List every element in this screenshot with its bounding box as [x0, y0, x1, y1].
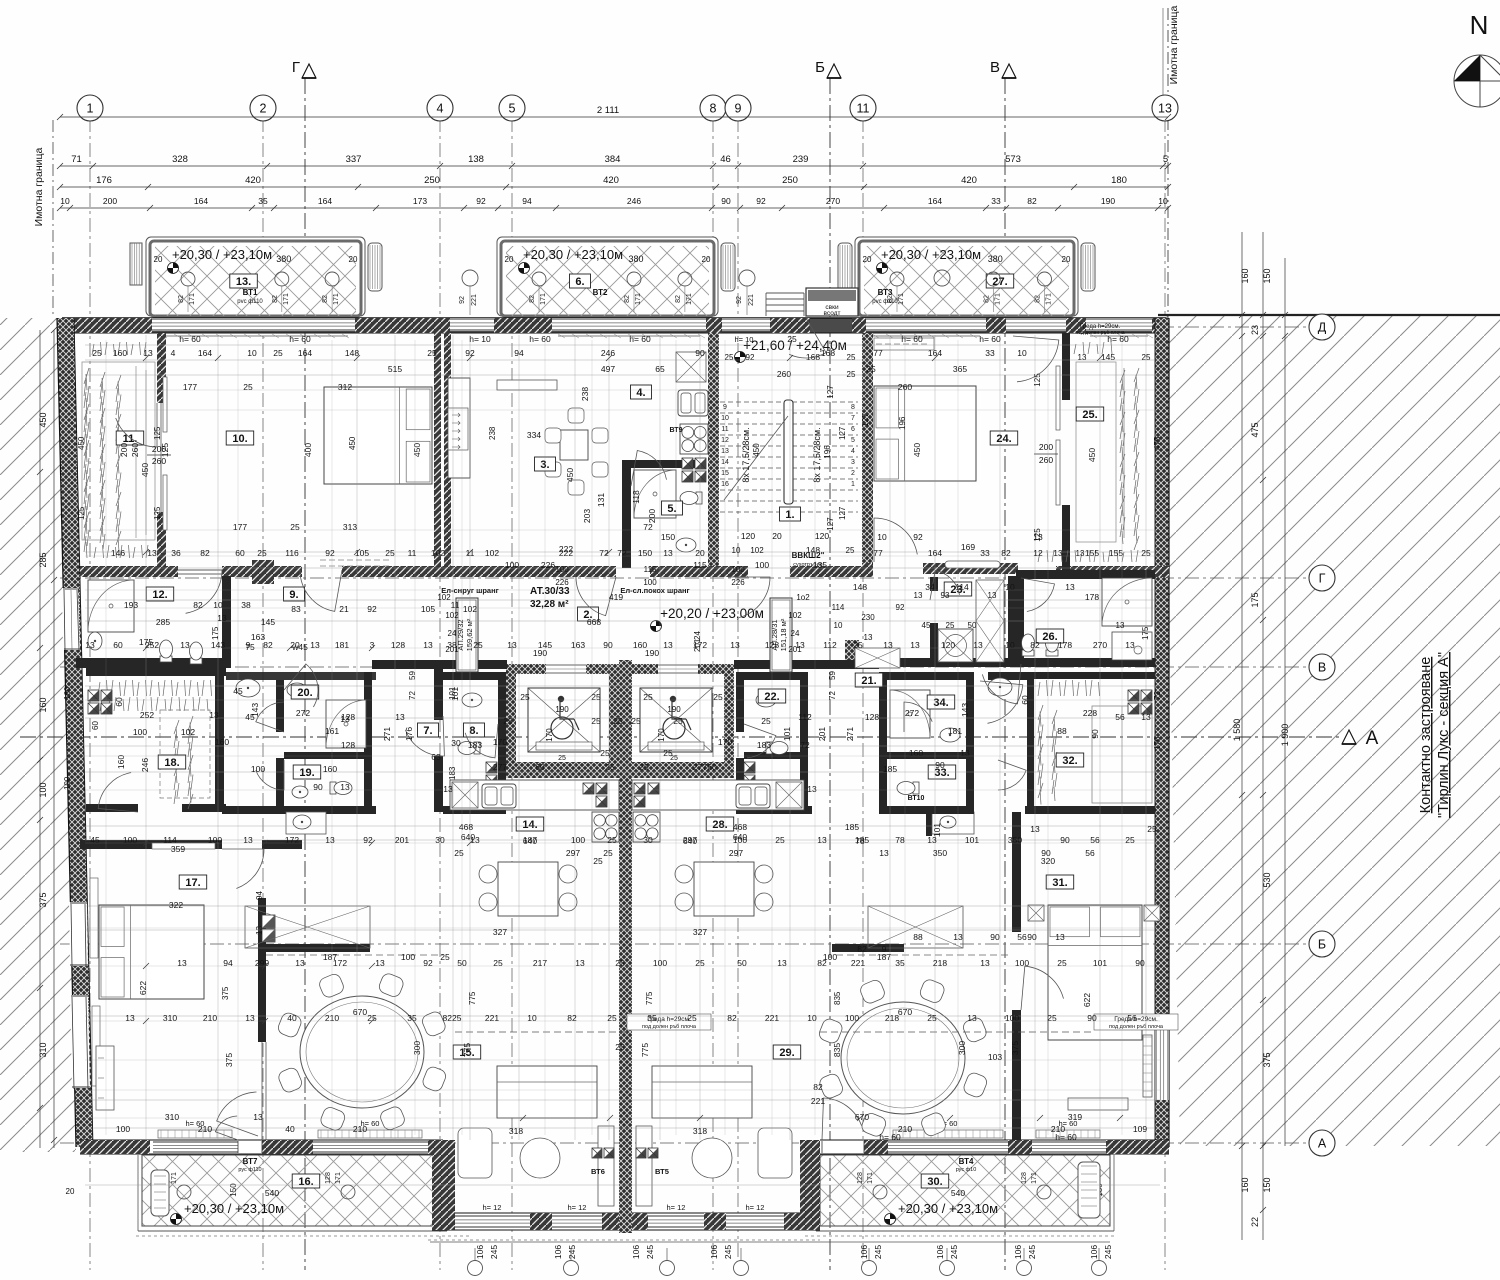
svg-text:168: 168 — [821, 348, 835, 358]
svg-text:9.: 9. — [289, 589, 298, 601]
svg-text:13: 13 — [177, 958, 187, 968]
svg-text:60: 60 — [707, 762, 717, 772]
svg-text:25: 25 — [1047, 1013, 1057, 1023]
svg-text:Имотна граница: Имотна граница — [1168, 5, 1180, 84]
svg-text:14.: 14. — [522, 819, 537, 831]
svg-text:164: 164 — [194, 196, 208, 206]
svg-text:h= 60: h= 60 — [901, 334, 923, 344]
svg-text:Ел-сл.покох шранг: Ел-сл.покох шранг — [620, 586, 689, 595]
svg-text:171: 171 — [283, 293, 290, 305]
svg-text:175: 175 — [1141, 626, 1150, 640]
svg-text:164: 164 — [928, 548, 942, 558]
svg-text:380: 380 — [276, 254, 291, 264]
svg-text:106: 106 — [709, 1245, 719, 1259]
svg-text:775: 775 — [640, 1043, 650, 1057]
svg-text:171: 171 — [1031, 1172, 1038, 1184]
svg-text:h= 60: h= 60 — [289, 334, 311, 344]
svg-text:25: 25 — [605, 762, 615, 772]
svg-text:170: 170 — [545, 728, 554, 742]
svg-text:35: 35 — [895, 958, 905, 968]
svg-text:8х 17,5/28см.: 8х 17,5/28см. — [741, 427, 751, 482]
svg-text:45: 45 — [90, 835, 100, 845]
svg-text:143: 143 — [211, 640, 225, 650]
svg-text:50: 50 — [968, 621, 977, 630]
svg-text:13: 13 — [988, 591, 997, 600]
svg-text:450: 450 — [412, 443, 422, 457]
svg-text:319: 319 — [1068, 1112, 1082, 1122]
svg-text:109: 109 — [1133, 1124, 1147, 1134]
svg-text:277: 277 — [493, 762, 507, 772]
svg-text:"Тирлин Лукс - секция А": "Тирлин Лукс - секция А" — [1436, 652, 1452, 818]
svg-text:201: 201 — [395, 835, 409, 845]
svg-text:h= 60: h= 60 — [879, 1132, 901, 1142]
svg-text:94: 94 — [514, 348, 524, 358]
svg-text:106: 106 — [935, 1245, 945, 1259]
svg-text:13: 13 — [1141, 712, 1151, 722]
svg-text:h= 60: h= 60 — [1107, 334, 1129, 344]
svg-text:183: 183 — [757, 740, 771, 750]
svg-text:h= 60: h= 60 — [1055, 1132, 1077, 1142]
svg-text:25: 25 — [761, 716, 771, 726]
svg-text:102: 102 — [431, 548, 445, 558]
svg-text:116: 116 — [285, 548, 299, 558]
svg-text:13: 13 — [927, 835, 937, 845]
svg-text:270: 270 — [1093, 640, 1107, 650]
svg-text:1 900: 1 900 — [1280, 724, 1290, 747]
svg-text:25: 25 — [591, 716, 601, 726]
svg-text:100: 100 — [505, 560, 519, 570]
svg-text:112: 112 — [798, 712, 812, 722]
svg-text:25: 25 — [615, 1042, 625, 1052]
svg-text:25: 25 — [603, 848, 613, 858]
svg-text:10: 10 — [1158, 196, 1168, 206]
svg-text:190: 190 — [555, 705, 569, 714]
svg-text:128: 128 — [857, 1172, 864, 1184]
svg-text:172: 172 — [333, 958, 347, 968]
svg-text:359: 359 — [171, 844, 185, 854]
svg-text:310: 310 — [165, 1112, 179, 1122]
svg-text:90: 90 — [935, 760, 945, 770]
svg-text:190: 190 — [667, 705, 681, 714]
svg-text:13: 13 — [1076, 549, 1085, 558]
svg-text:160: 160 — [323, 764, 337, 774]
svg-text:640: 640 — [733, 832, 747, 842]
svg-text:622: 622 — [138, 981, 148, 995]
svg-text:775: 775 — [645, 991, 654, 1005]
svg-text:60: 60 — [535, 762, 545, 772]
svg-text:9: 9 — [246, 640, 251, 650]
svg-text:21.: 21. — [861, 675, 876, 687]
svg-text:196: 196 — [898, 416, 907, 430]
svg-text:190: 190 — [1101, 196, 1115, 206]
svg-text:60: 60 — [91, 721, 100, 730]
svg-text:250: 250 — [782, 175, 798, 186]
svg-text:3: 3 — [370, 640, 375, 650]
svg-text:100: 100 — [123, 835, 137, 845]
svg-text:32.: 32. — [1062, 755, 1077, 767]
svg-text:400: 400 — [303, 443, 313, 457]
svg-text:+20,30 / +23,10м: +20,30 / +23,10м — [523, 247, 623, 262]
svg-text:25: 25 — [1057, 958, 1067, 968]
svg-text:5: 5 — [851, 437, 855, 444]
svg-text:13: 13 — [1158, 102, 1172, 116]
svg-text:25: 25 — [1147, 824, 1157, 834]
svg-text:13: 13 — [910, 640, 920, 650]
svg-text:185: 185 — [883, 764, 897, 774]
svg-text:13: 13 — [125, 1013, 135, 1023]
svg-text:4: 4 — [851, 448, 855, 455]
svg-text:59: 59 — [828, 671, 837, 680]
svg-text:100: 100 — [755, 560, 769, 570]
svg-text:450: 450 — [912, 443, 922, 457]
svg-text:82: 82 — [567, 1013, 577, 1023]
svg-text:138: 138 — [468, 154, 484, 165]
svg-text:33: 33 — [991, 196, 1001, 206]
svg-text:102: 102 — [181, 727, 195, 737]
svg-text:245: 245 — [489, 1245, 499, 1259]
svg-text:13: 13 — [914, 591, 923, 600]
svg-text:13: 13 — [663, 640, 673, 650]
svg-text:25: 25 — [454, 848, 464, 858]
svg-text:350: 350 — [933, 848, 947, 858]
svg-text:13: 13 — [883, 640, 893, 650]
svg-text:20: 20 — [505, 255, 514, 264]
svg-text:25.: 25. — [1082, 409, 1097, 421]
svg-text:25: 25 — [1141, 548, 1151, 558]
svg-text:2 111: 2 111 — [597, 105, 619, 116]
svg-text:90: 90 — [1060, 835, 1070, 845]
svg-text:160: 160 — [38, 697, 48, 712]
svg-text:239: 239 — [793, 154, 809, 165]
svg-text:127: 127 — [838, 426, 847, 440]
svg-text:160: 160 — [215, 737, 229, 747]
svg-text:218: 218 — [885, 1013, 899, 1023]
svg-text:18.: 18. — [164, 757, 179, 769]
svg-text:21: 21 — [339, 604, 349, 614]
svg-text:128: 128 — [341, 740, 355, 750]
svg-text:384: 384 — [605, 154, 621, 165]
svg-text:72: 72 — [800, 740, 810, 750]
svg-text:221: 221 — [851, 958, 865, 968]
svg-text:450: 450 — [752, 443, 761, 457]
svg-text:30: 30 — [643, 835, 653, 845]
svg-text:10: 10 — [1017, 348, 1027, 358]
svg-text:11: 11 — [451, 600, 460, 610]
svg-text:4: 4 — [171, 348, 176, 358]
svg-text:125: 125 — [160, 443, 170, 457]
svg-text:6: 6 — [851, 426, 855, 433]
svg-text:185: 185 — [855, 835, 869, 845]
svg-text:35: 35 — [258, 196, 268, 206]
svg-text:177: 177 — [233, 522, 247, 532]
svg-text:25: 25 — [639, 762, 649, 772]
svg-text:200: 200 — [647, 509, 657, 523]
svg-text:45: 45 — [922, 621, 931, 630]
svg-text:145: 145 — [261, 617, 275, 627]
svg-text:82: 82 — [272, 295, 279, 303]
svg-text:201: 201 — [693, 638, 702, 652]
svg-text:10.: 10. — [232, 433, 247, 445]
svg-text:13: 13 — [575, 958, 585, 968]
svg-text:34: 34 — [925, 582, 935, 592]
svg-text:100: 100 — [643, 578, 657, 587]
svg-text:13: 13 — [253, 1112, 263, 1122]
svg-text:13: 13 — [663, 548, 673, 558]
svg-text:82: 82 — [857, 944, 867, 954]
svg-text:20: 20 — [349, 255, 358, 264]
svg-text:ВТ6: ВТ6 — [591, 1167, 605, 1176]
svg-text:10: 10 — [877, 532, 887, 542]
svg-text:127: 127 — [826, 517, 835, 531]
svg-text:299: 299 — [255, 958, 269, 968]
svg-text:125: 125 — [77, 506, 86, 520]
svg-text:25: 25 — [687, 1013, 697, 1023]
svg-text:10: 10 — [527, 1013, 537, 1023]
svg-text:128: 128 — [341, 712, 355, 722]
svg-text:94: 94 — [223, 958, 233, 968]
svg-text:312: 312 — [338, 382, 352, 392]
svg-text:10: 10 — [1005, 640, 1015, 650]
svg-text:5.: 5. — [667, 503, 676, 515]
svg-text:26.: 26. — [1042, 631, 1057, 643]
svg-text:201: 201 — [817, 727, 827, 741]
svg-text:171: 171 — [1046, 293, 1053, 305]
svg-text:260: 260 — [130, 443, 140, 457]
svg-text:13: 13 — [980, 958, 990, 968]
svg-text:h= 12: h= 12 — [568, 1203, 587, 1212]
svg-text:125: 125 — [153, 506, 162, 520]
svg-text:25: 25 — [775, 835, 785, 845]
svg-text:171: 171 — [994, 293, 1001, 305]
svg-text:100: 100 — [731, 565, 745, 574]
svg-text:13: 13 — [375, 958, 385, 968]
svg-text:2: 2 — [851, 470, 855, 477]
svg-text:238: 238 — [488, 426, 497, 440]
svg-text:365: 365 — [953, 364, 967, 374]
svg-text:pvc ф110: pvc ф110 — [872, 299, 898, 305]
svg-text:178: 178 — [1058, 640, 1072, 650]
svg-text:13: 13 — [1125, 640, 1135, 650]
svg-text:11: 11 — [466, 548, 475, 558]
svg-text:92: 92 — [367, 604, 377, 614]
svg-text:164: 164 — [928, 196, 942, 206]
svg-text:100: 100 — [116, 1124, 130, 1134]
svg-text:171: 171 — [335, 1172, 342, 1184]
svg-text:114: 114 — [163, 835, 177, 845]
svg-text:h= 60: h= 60 — [179, 334, 201, 344]
svg-text:106: 106 — [553, 1245, 563, 1259]
svg-text:327: 327 — [493, 927, 507, 937]
svg-text:12.: 12. — [152, 589, 167, 601]
svg-text:ВТ1: ВТ1 — [243, 288, 258, 297]
svg-text:148: 148 — [345, 348, 359, 358]
svg-text:90: 90 — [990, 932, 1000, 942]
svg-text:193: 193 — [124, 600, 138, 610]
svg-text:13: 13 — [310, 640, 320, 650]
svg-text:72: 72 — [1153, 691, 1162, 700]
svg-text:60: 60 — [114, 697, 124, 707]
svg-text:328: 328 — [172, 154, 188, 165]
svg-text:35: 35 — [407, 1013, 417, 1023]
svg-text:77: 77 — [873, 548, 883, 558]
svg-text:670: 670 — [353, 1007, 367, 1017]
svg-text:164: 164 — [928, 348, 942, 358]
svg-text:100: 100 — [1005, 1013, 1019, 1023]
svg-text:375: 375 — [1262, 1052, 1272, 1067]
svg-text:82: 82 — [727, 1013, 737, 1023]
svg-text:313: 313 — [343, 522, 357, 532]
svg-text:25: 25 — [607, 1013, 617, 1023]
svg-text:176: 176 — [404, 727, 414, 741]
svg-text:92: 92 — [465, 348, 475, 358]
svg-text:82: 82 — [1030, 640, 1040, 650]
svg-text:h= 60: h= 60 — [979, 334, 1001, 344]
svg-text:175: 175 — [1250, 592, 1260, 607]
svg-text:238: 238 — [580, 387, 590, 401]
svg-text:25: 25 — [631, 716, 641, 726]
svg-text:13: 13 — [879, 848, 889, 858]
svg-text:25: 25 — [673, 716, 683, 726]
svg-text:56: 56 — [1017, 932, 1027, 942]
svg-text:100: 100 — [1015, 958, 1029, 968]
svg-text:120: 120 — [941, 640, 955, 650]
svg-text:13: 13 — [1030, 824, 1040, 834]
svg-text:171: 171 — [635, 293, 642, 305]
svg-text:200: 200 — [119, 443, 129, 457]
svg-text:ВТ10: ВТ10 — [908, 795, 925, 802]
svg-text:56: 56 — [1115, 712, 1125, 722]
svg-text:В: В — [990, 59, 1000, 76]
svg-text:25: 25 — [591, 692, 601, 702]
svg-text:20: 20 — [863, 255, 872, 264]
svg-text:25: 25 — [607, 835, 617, 845]
svg-text:10: 10 — [60, 196, 70, 206]
svg-text:25: 25 — [520, 692, 530, 702]
svg-text:13: 13 — [1055, 932, 1065, 942]
svg-text:ВТ2: ВТ2 — [593, 288, 608, 297]
svg-text:201: 201 — [445, 645, 459, 654]
svg-text:В: В — [1318, 661, 1326, 675]
svg-text:92: 92 — [476, 196, 486, 206]
svg-text:46: 46 — [720, 154, 731, 165]
svg-text:230: 230 — [861, 613, 875, 622]
svg-text:468: 468 — [733, 822, 747, 832]
svg-text:164: 164 — [318, 196, 332, 206]
svg-text:100: 100 — [401, 952, 415, 962]
svg-text:25: 25 — [713, 692, 723, 702]
svg-text:25: 25 — [846, 546, 855, 555]
svg-text:13: 13 — [1078, 353, 1087, 362]
svg-text:106: 106 — [1089, 1245, 1099, 1259]
svg-text:10: 10 — [213, 600, 223, 610]
svg-text:32,28 м²: 32,28 м² — [530, 599, 569, 610]
svg-text:102: 102 — [445, 611, 459, 620]
svg-text:25: 25 — [243, 382, 253, 392]
svg-text:13: 13 — [1033, 532, 1043, 542]
svg-text:82: 82 — [1001, 548, 1011, 558]
svg-text:25: 25 — [473, 640, 483, 650]
svg-text:82: 82 — [624, 295, 631, 303]
svg-text:155: 155 — [1109, 548, 1123, 558]
svg-text:24.: 24. — [996, 433, 1011, 445]
svg-text:82: 82 — [675, 295, 682, 303]
svg-text:40: 40 — [287, 1013, 297, 1023]
svg-text:13: 13 — [143, 348, 153, 358]
svg-text:24: 24 — [791, 629, 800, 638]
svg-text:222: 222 — [559, 548, 573, 558]
svg-text:245: 245 — [567, 1245, 577, 1259]
svg-text:13: 13 — [209, 710, 219, 720]
svg-text:25: 25 — [613, 716, 623, 726]
svg-text:160: 160 — [63, 686, 72, 700]
svg-text:45: 45 — [245, 712, 255, 722]
svg-text:Д: Д — [1318, 321, 1327, 335]
svg-text:20: 20 — [1062, 255, 1071, 264]
svg-text:540: 540 — [951, 1188, 965, 1198]
svg-text:3: 3 — [851, 459, 855, 466]
svg-text:573: 573 — [1005, 154, 1021, 165]
svg-text:Г: Г — [1319, 572, 1326, 586]
svg-text:ВТ3: ВТ3 — [878, 288, 893, 297]
svg-text:285: 285 — [156, 617, 170, 627]
svg-text:250: 250 — [424, 175, 440, 186]
svg-text:50: 50 — [737, 958, 747, 968]
svg-text:183: 183 — [468, 740, 482, 750]
svg-text:176: 176 — [1153, 736, 1162, 750]
svg-text:24: 24 — [693, 631, 702, 640]
svg-text:226: 226 — [555, 578, 569, 587]
svg-text:93: 93 — [941, 591, 950, 600]
svg-text:13: 13 — [245, 1013, 255, 1023]
svg-text:515: 515 — [388, 364, 402, 374]
svg-text:146: 146 — [111, 548, 125, 558]
svg-text:29.: 29. — [779, 1047, 794, 1059]
svg-text:56: 56 — [1085, 848, 1095, 858]
svg-text:530: 530 — [1262, 872, 1272, 887]
svg-text:112: 112 — [823, 640, 837, 650]
svg-text:497: 497 — [601, 364, 615, 374]
svg-text:13: 13 — [85, 640, 95, 650]
svg-text:13: 13 — [730, 640, 740, 650]
svg-text:10: 10 — [834, 621, 843, 630]
svg-text:82: 82 — [263, 640, 273, 650]
svg-text:148: 148 — [853, 582, 867, 592]
svg-text:101: 101 — [965, 835, 979, 845]
svg-text:775: 775 — [462, 1043, 472, 1057]
svg-text:25: 25 — [92, 348, 102, 358]
svg-text:25: 25 — [643, 692, 653, 702]
svg-text:300: 300 — [957, 1041, 967, 1055]
svg-text:рус ф110: рус ф110 — [238, 1167, 261, 1173]
svg-text:8: 8 — [710, 102, 717, 116]
svg-text:102: 102 — [750, 546, 764, 555]
svg-text:420: 420 — [961, 175, 977, 186]
svg-text:2: 2 — [260, 102, 267, 116]
svg-text:143: 143 — [960, 703, 970, 717]
svg-text:200: 200 — [103, 196, 117, 206]
svg-text:92: 92 — [896, 603, 905, 612]
svg-text:11: 11 — [408, 548, 417, 558]
svg-text:10: 10 — [807, 1013, 817, 1023]
svg-text:N: N — [1470, 10, 1489, 40]
svg-text:13: 13 — [507, 640, 517, 650]
svg-text:92: 92 — [459, 296, 466, 304]
svg-text:25: 25 — [847, 370, 856, 379]
svg-text:9: 9 — [735, 102, 742, 116]
svg-text:171: 171 — [686, 293, 693, 305]
svg-text:24: 24 — [448, 629, 457, 638]
svg-text:260: 260 — [1039, 455, 1053, 465]
